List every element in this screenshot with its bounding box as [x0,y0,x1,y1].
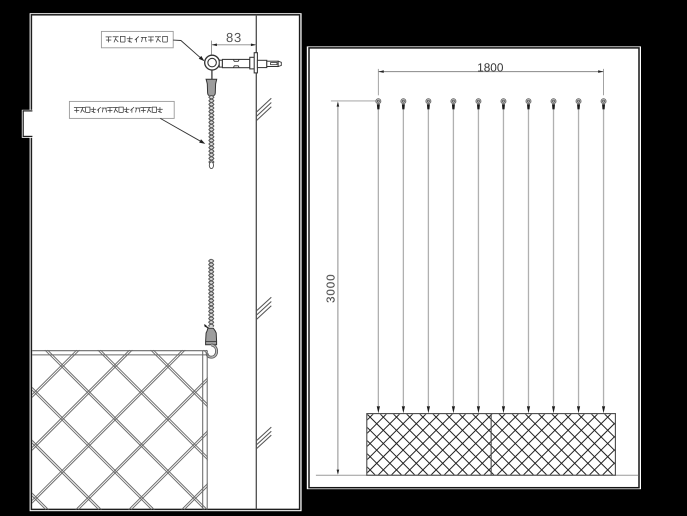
svg-text:3000: 3000 [326,273,338,303]
svg-text:1800: 1800 [477,61,504,75]
svg-text:83: 83 [226,30,242,45]
